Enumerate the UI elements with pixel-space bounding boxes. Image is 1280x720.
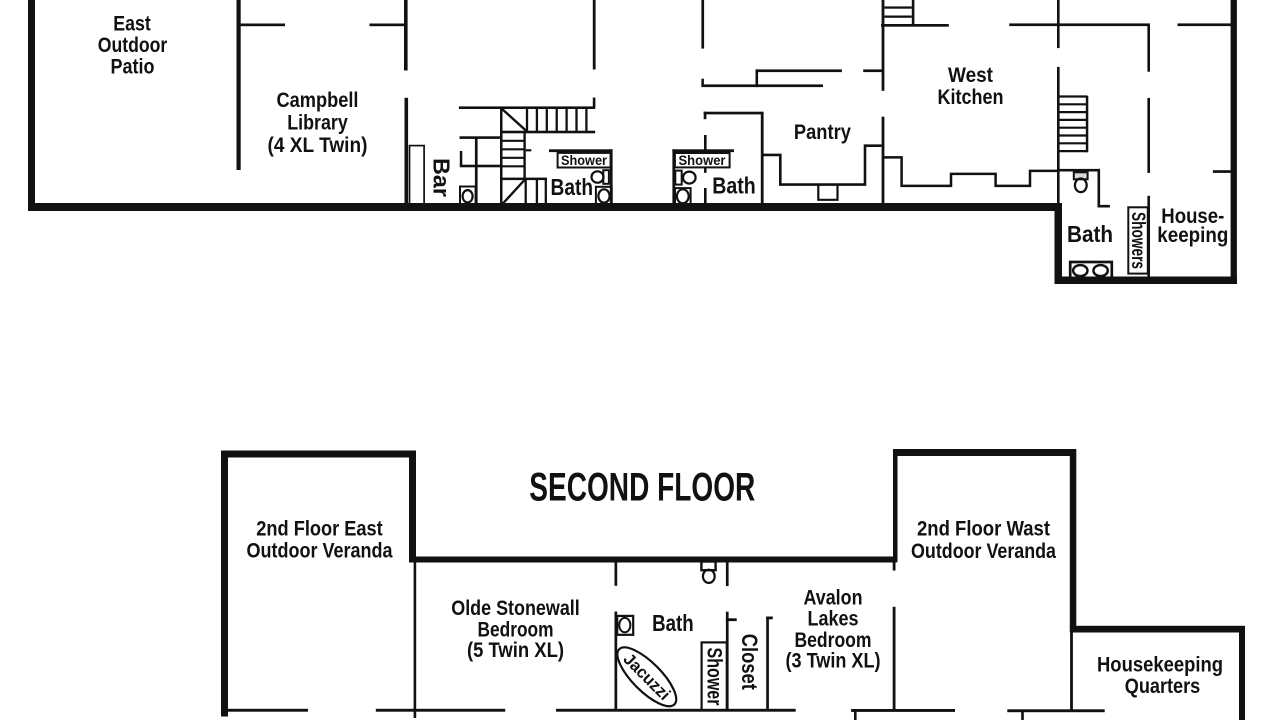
svg-text:Lakes: Lakes: [808, 607, 859, 630]
svg-text:Avalon: Avalon: [804, 587, 863, 610]
svg-text:Housekeeping: Housekeeping: [1097, 654, 1223, 677]
svg-text:Pantry: Pantry: [794, 120, 851, 144]
svg-text:(3 Twin XL): (3 Twin XL): [786, 650, 881, 673]
svg-text:Library: Library: [287, 111, 348, 135]
svg-text:Shower: Shower: [679, 153, 727, 168]
svg-text:Bar: Bar: [429, 158, 455, 197]
svg-text:West: West: [948, 63, 993, 87]
svg-text:Kitchen: Kitchen: [938, 85, 1004, 109]
svg-text:Outdoor Veranda: Outdoor Veranda: [247, 540, 393, 563]
svg-text:(4 XL Twin): (4 XL Twin): [268, 133, 368, 157]
svg-text:Closet: Closet: [737, 634, 762, 690]
svg-text:2nd Floor East: 2nd Floor East: [256, 518, 383, 541]
svg-text:2nd Floor Wast: 2nd Floor Wast: [917, 518, 1050, 541]
svg-text:Bath: Bath: [652, 610, 694, 636]
svg-text:Patio: Patio: [111, 55, 155, 79]
svg-text:Bath: Bath: [1067, 221, 1113, 247]
svg-text:East: East: [113, 12, 151, 36]
svg-text:Campbell: Campbell: [277, 88, 359, 112]
svg-text:(5 Twin XL): (5 Twin XL): [467, 639, 564, 662]
svg-text:keeping: keeping: [1157, 224, 1228, 247]
svg-text:Bath: Bath: [712, 173, 756, 199]
svg-text:Shower: Shower: [561, 153, 608, 168]
svg-text:Outdoor: Outdoor: [98, 33, 168, 57]
svg-text:SECOND FLOOR: SECOND FLOOR: [529, 466, 755, 510]
svg-text:Quarters: Quarters: [1125, 675, 1201, 698]
svg-text:Outdoor Veranda: Outdoor Veranda: [911, 540, 1056, 563]
svg-text:Olde Stonewall: Olde Stonewall: [451, 597, 580, 620]
svg-text:Bath: Bath: [551, 174, 594, 200]
svg-text:Shower: Shower: [703, 648, 726, 706]
svg-text:Showers: Showers: [1127, 212, 1149, 269]
